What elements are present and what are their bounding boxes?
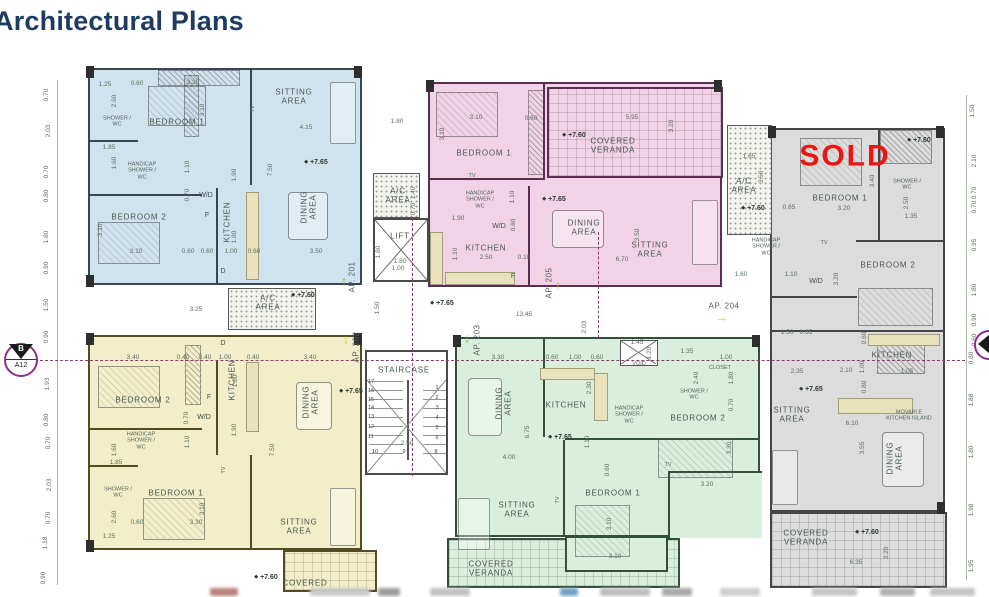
dimension-label: 6.70 bbox=[616, 256, 629, 264]
dimension-label: 3.10 bbox=[97, 224, 105, 237]
level-marker: +7.60 bbox=[741, 205, 765, 213]
dimension-label: 1.60 bbox=[111, 444, 119, 457]
fixture-label: W/D bbox=[492, 223, 506, 231]
room-label: A/C AREA bbox=[386, 187, 411, 206]
dimension-label: 13.45 bbox=[516, 311, 532, 319]
room-label: COVERED VERANDA bbox=[468, 560, 513, 579]
fixture-label: F bbox=[207, 394, 211, 402]
room-label: SITTING AREA bbox=[631, 241, 668, 260]
dimension-label: 0.90 bbox=[43, 331, 51, 344]
room-label: BEDROOM 2 bbox=[670, 413, 725, 422]
level-marker: +7.60 bbox=[291, 292, 315, 300]
dimension-label: 0.60 bbox=[525, 115, 538, 123]
dimension-label: 2.10 bbox=[840, 367, 853, 375]
room-label: DINING AREA bbox=[568, 219, 601, 238]
room-label: BEDROOM 1 bbox=[148, 488, 203, 497]
dimension-label: 3.30 bbox=[492, 354, 505, 362]
stair-number: 2 bbox=[435, 395, 438, 401]
dimension-label: 3.30 bbox=[726, 442, 734, 455]
dimension-label: 1.20 bbox=[646, 347, 654, 360]
dimension-label: 0.70 bbox=[971, 187, 979, 200]
level-marker: +7.65 bbox=[542, 196, 566, 204]
stair-number: 8 bbox=[434, 449, 437, 455]
dimension-label: 1.50 bbox=[781, 329, 794, 337]
dimension-label: 0.80 bbox=[43, 414, 51, 427]
dimension-label: 1.98 bbox=[968, 504, 976, 517]
dimension-label: 0.95 bbox=[971, 239, 979, 252]
dimension-label: 7.50 bbox=[267, 164, 275, 177]
fixture-label: W/D bbox=[809, 278, 823, 286]
dimension-label: 0.60 bbox=[131, 519, 144, 527]
room-label: COVERED bbox=[282, 578, 327, 587]
room-label: BEDROOM 2 bbox=[860, 260, 915, 269]
blurred-thumbnail bbox=[560, 588, 578, 596]
dimension-label: 6.10 bbox=[846, 420, 859, 428]
dimension-label: 1.93 bbox=[44, 378, 52, 391]
dimension-label: 3.50 bbox=[634, 229, 642, 242]
dimension-label: 3.30 bbox=[187, 79, 200, 87]
stair-number: 11 bbox=[368, 434, 374, 440]
section-marker-divider bbox=[6, 359, 36, 360]
room-label: COVERED VERANDA bbox=[783, 529, 828, 548]
apartment-number-label: AP. 203 bbox=[472, 325, 481, 356]
blurred-thumbnail bbox=[720, 588, 760, 596]
dimension-label: 0.60 bbox=[182, 248, 195, 256]
room-sublabel: SHOWER / WC bbox=[893, 179, 921, 192]
room-sublabel: HANDICAP SHOWER / WC bbox=[466, 190, 494, 209]
room-sublabel: TV bbox=[664, 462, 671, 468]
fixture-label: F bbox=[205, 212, 209, 220]
section-marker-sheet: A12 bbox=[4, 362, 38, 369]
fixture-label: F bbox=[511, 273, 515, 281]
dimension-label: 0.40 bbox=[199, 354, 212, 362]
dimension-label: 2.60 bbox=[111, 95, 119, 108]
dimension-label: 5.95 bbox=[626, 114, 639, 122]
dimension-label: 3.10 bbox=[470, 114, 483, 122]
dimension-label: 0.40 bbox=[177, 354, 190, 362]
dimension-label: 1.40 bbox=[410, 187, 418, 200]
dimension-label: 1.90 bbox=[231, 169, 239, 182]
stair-number: 17 bbox=[368, 379, 374, 385]
dimension-label: 1.00 bbox=[219, 354, 232, 362]
room-label: SITTING AREA bbox=[275, 88, 312, 107]
dimension-label: 2.60 bbox=[111, 511, 119, 524]
dimension-label: 3.40 bbox=[869, 175, 877, 188]
dimension-label: 3.10 bbox=[606, 518, 614, 531]
room-sublabel: HANDICAP SHOWER / WC bbox=[128, 161, 156, 180]
dimension-label: 0.60 bbox=[510, 219, 518, 232]
dimension-label: 1.80 bbox=[971, 284, 979, 297]
room-label: SITTING AREA bbox=[773, 406, 810, 425]
stair-number: 4 bbox=[435, 415, 438, 421]
dimension-label: 3.20 bbox=[883, 547, 891, 560]
fixture-label: D bbox=[220, 340, 225, 348]
level-marker: +7.60 bbox=[855, 529, 879, 537]
room-label: BEDROOM 2 bbox=[115, 395, 170, 404]
entrance-arrow-icon: ↓ bbox=[464, 330, 471, 345]
dimension-label: 1.60 bbox=[735, 271, 748, 279]
level-marker: +7.60 bbox=[907, 137, 931, 145]
stair-number: 1 bbox=[435, 385, 438, 391]
dimension-label: 0.60 bbox=[131, 80, 144, 88]
blurred-thumbnail bbox=[378, 588, 400, 596]
room-label: KITCHEN bbox=[546, 400, 587, 409]
annotation-layer: BEDROOM 1SITTING AREABEDROOM 2KITCHENDIN… bbox=[0, 0, 989, 597]
apartment-number-label: AP. 202 bbox=[351, 332, 360, 363]
dimension-label: 0.10 bbox=[518, 254, 531, 262]
dimension-label: 1.90 bbox=[452, 215, 465, 223]
dimension-label: 1.10 bbox=[184, 436, 192, 449]
dimension-label: 1.10 bbox=[785, 271, 798, 279]
room-label: BEDROOM 1 bbox=[812, 193, 867, 202]
stair-number: 5 bbox=[435, 425, 438, 431]
dimension-label: 2.50 bbox=[480, 254, 493, 262]
level-marker: +7.65 bbox=[548, 434, 572, 442]
room-sublabel: TV bbox=[555, 496, 561, 503]
dimension-label: 2.50 bbox=[903, 197, 911, 210]
room-label: KITCHEN bbox=[466, 243, 507, 252]
fixture-label: D bbox=[220, 268, 225, 276]
room-label: DINING AREA bbox=[300, 191, 319, 224]
room-label: BEDROOM 1 bbox=[585, 488, 640, 497]
dimension-label: 3.30 bbox=[190, 519, 203, 527]
dimension-label: 3.55 bbox=[859, 442, 867, 455]
dimension-label: 1.00 bbox=[392, 265, 405, 273]
stair-number: 3 bbox=[435, 405, 438, 411]
level-marker: +7.65 bbox=[304, 159, 328, 167]
dimension-label: 3.20 bbox=[838, 205, 851, 213]
room-label: STAIRCASE bbox=[378, 365, 430, 374]
dimension-label: 0.80 bbox=[861, 381, 869, 394]
dimension-label: 0.60 bbox=[248, 248, 261, 256]
dimension-label: 2.40 bbox=[693, 372, 701, 385]
dimension-label: 0.60 bbox=[201, 248, 214, 256]
dimension-label: 0.60 bbox=[861, 332, 869, 345]
dimension-label: 3.10 bbox=[199, 503, 207, 516]
dimension-label: 1.95 bbox=[968, 560, 976, 573]
dimension-label: 3.10 bbox=[439, 128, 447, 141]
dimension-label: 1.00 bbox=[859, 361, 867, 374]
blurred-thumbnail-strip bbox=[0, 588, 989, 597]
stair-number: 15 bbox=[368, 397, 374, 403]
dimension-label: 0.70 bbox=[43, 166, 51, 179]
dimension-label: 0.65 bbox=[783, 204, 796, 212]
dimension-label: 1.80 bbox=[232, 375, 240, 388]
room-label: SITTING AREA bbox=[498, 501, 535, 520]
dimension-label: 0.70 bbox=[410, 203, 418, 216]
dimension-label: 0.60 bbox=[604, 464, 612, 477]
dimension-label: 1.25 bbox=[103, 533, 116, 541]
dimension-label: 0.70 bbox=[45, 437, 53, 450]
room-label: A/C AREA bbox=[256, 294, 281, 313]
dimension-label: 2.03 bbox=[581, 321, 589, 334]
sold-badge: SOLD bbox=[799, 138, 890, 173]
blurred-thumbnail bbox=[662, 588, 692, 596]
dimension-label: 3.50 bbox=[310, 248, 323, 256]
room-label: DINING AREA bbox=[886, 442, 905, 475]
dimension-label: 2.03 bbox=[46, 479, 54, 492]
dimension-label: 0.90 bbox=[43, 262, 51, 275]
floor-plan-page: Architectural Plans bbox=[0, 0, 989, 597]
fixture-label: W/D bbox=[197, 414, 211, 422]
dimension-label: 0.60 bbox=[591, 354, 604, 362]
dimension-label: 3.20 bbox=[668, 120, 676, 133]
room-label: A/C AREA bbox=[732, 177, 757, 196]
room-label: DINING AREA bbox=[302, 386, 321, 419]
entrance-arrow-icon: ↓ bbox=[343, 331, 350, 346]
dimension-label: 3.10 bbox=[199, 104, 207, 117]
dimension-label: 1.50 bbox=[43, 299, 51, 312]
room-sublabel: SHOWER / WC bbox=[104, 487, 132, 500]
level-marker: +7.65 bbox=[339, 388, 363, 396]
dimension-label: 1.10 bbox=[509, 191, 517, 204]
dimension-label: 1.80 bbox=[375, 246, 383, 259]
stair-number: 12 bbox=[368, 424, 374, 430]
dimension-label: 1.80 bbox=[43, 231, 51, 244]
section-marker: B A12 bbox=[4, 343, 38, 377]
room-label: SITTING AREA bbox=[280, 518, 317, 537]
dimension-label: 0.70 bbox=[728, 399, 736, 412]
room-sublabel: TV bbox=[250, 105, 256, 112]
room-sublabel: TV bbox=[820, 240, 827, 246]
dimension-label: 1.25 bbox=[99, 81, 112, 89]
dimension-label: 0.60 bbox=[546, 354, 559, 362]
stair-number: 9 bbox=[402, 449, 405, 455]
room-label: KITCHEN bbox=[872, 350, 913, 359]
blurred-thumbnail bbox=[310, 588, 370, 596]
blurred-thumbnail bbox=[812, 588, 857, 596]
dimension-label: 3.50 bbox=[758, 171, 766, 184]
dimension-label: 1.10 bbox=[184, 161, 192, 174]
dimension-label: 1.00 bbox=[720, 354, 733, 362]
blurred-thumbnail bbox=[930, 588, 975, 596]
room-label: BEDROOM 1 bbox=[149, 117, 204, 126]
dimension-label: 3.40 bbox=[304, 354, 317, 362]
room-sublabel: HANDICAP SHOWER / WC bbox=[752, 237, 780, 256]
dimension-label: 1.45 bbox=[631, 339, 644, 347]
blurred-thumbnail bbox=[880, 588, 915, 596]
section-direction-icon bbox=[978, 334, 989, 354]
dimension-label: 0.80 bbox=[43, 190, 51, 203]
dimension-label: 0.70 bbox=[184, 189, 192, 202]
dimension-label: 1.88 bbox=[968, 394, 976, 407]
stair-number: 16 bbox=[368, 388, 374, 394]
room-sublabel: HANDICAP SHOWER / WC bbox=[127, 431, 155, 450]
dimension-label: 3.25 bbox=[190, 306, 203, 314]
stair-number: 10 bbox=[372, 449, 378, 455]
room-label: BEDROOM 2 bbox=[111, 212, 166, 221]
dimension-label: 1.80 bbox=[968, 446, 976, 459]
room-label: LIFT bbox=[390, 231, 410, 240]
dimension-label: 0.80 bbox=[968, 352, 976, 365]
room-sublabel: MOVABLE KITCHEN ISLAND bbox=[886, 410, 932, 423]
dimension-label: 1.18 bbox=[42, 537, 50, 550]
dimension-label: 3.40 bbox=[127, 354, 140, 362]
room-label: DINING AREA bbox=[495, 387, 514, 420]
level-marker: +7.65 bbox=[430, 300, 454, 308]
dimension-label: 1.50 bbox=[374, 302, 382, 315]
dimension-label: 2.50 bbox=[401, 440, 414, 448]
level-marker: +7.60 bbox=[562, 132, 586, 140]
level-marker: +7.65 bbox=[799, 386, 823, 394]
dimension-label: 0.70 bbox=[45, 512, 53, 525]
room-sublabel: TV bbox=[221, 466, 227, 473]
room-label: COVERED VERANDA bbox=[590, 137, 635, 156]
room-label: BEDROOM 1 bbox=[456, 148, 511, 157]
dimension-label: 1.80 bbox=[231, 231, 239, 244]
room-sublabel: VOID bbox=[632, 361, 645, 367]
stair-number: 13 bbox=[368, 414, 374, 420]
blurred-thumbnail bbox=[600, 588, 650, 596]
dimension-label: 0.70 bbox=[43, 89, 51, 102]
dimension-label: 1.50 bbox=[969, 105, 977, 118]
dimension-label: 0.70 bbox=[971, 201, 979, 214]
dimension-label: 1.60 bbox=[111, 157, 119, 170]
dimension-label: 2.35 bbox=[791, 368, 804, 376]
dimension-label: 1.35 bbox=[681, 348, 694, 356]
section-marker-id: B bbox=[4, 344, 38, 353]
dimension-label: 1.00 bbox=[569, 354, 582, 362]
room-sublabel: HANDICAP SHOWER / WC bbox=[615, 405, 643, 424]
dimension-label: 1.85 bbox=[110, 459, 123, 467]
dimension-label: 2.10 bbox=[971, 155, 979, 168]
dimension-label: 6.75 bbox=[524, 426, 532, 439]
stair-number: 14 bbox=[368, 405, 374, 411]
room-sublabel: CLOSET bbox=[709, 365, 731, 371]
level-marker: +7.60 bbox=[254, 574, 278, 582]
entrance-arrow-icon: ↑ bbox=[555, 277, 562, 292]
dimension-label: 3.10 bbox=[130, 248, 143, 256]
dimension-label: 1.80 bbox=[728, 372, 736, 385]
blurred-thumbnail bbox=[210, 588, 238, 596]
dimension-label: 2.30 bbox=[586, 382, 594, 395]
blurred-thumbnail bbox=[430, 588, 470, 596]
dimension-label: 3.10 bbox=[609, 553, 622, 561]
dimension-label: 0.70 bbox=[183, 412, 191, 425]
dimension-label: 1.05 bbox=[901, 368, 914, 376]
dimension-label: 1.85 bbox=[103, 144, 116, 152]
room-sublabel: SHOWER / WC bbox=[103, 116, 131, 129]
dimension-label: 1.90 bbox=[231, 424, 239, 437]
entrance-arrow-icon: → bbox=[716, 309, 729, 324]
room-sublabel: SHOWER / WC bbox=[680, 389, 708, 402]
dimension-label: 6.35 bbox=[850, 559, 863, 567]
dimension-label: 2.03 bbox=[45, 125, 53, 138]
dimension-label: 1.65 bbox=[743, 153, 756, 161]
dimension-label: 4.00 bbox=[503, 454, 516, 462]
dimension-label: 3.20 bbox=[701, 481, 714, 489]
dimension-label: 1.80 bbox=[391, 118, 404, 126]
dimension-label: 1.10 bbox=[584, 436, 592, 449]
dimension-label: 0.90 bbox=[971, 314, 979, 327]
apartment-number-label: AP. 205 bbox=[544, 268, 553, 299]
stair-number: 6 bbox=[435, 435, 438, 441]
dimension-label: 1.10 bbox=[452, 248, 460, 261]
dimension-label: 1.00 bbox=[225, 248, 238, 256]
apartment-number-label: AP. 201 bbox=[347, 262, 356, 293]
dimension-label: 4.15 bbox=[300, 124, 313, 132]
dimension-label: 7.50 bbox=[269, 444, 277, 457]
dimension-label: 3.20 bbox=[833, 273, 841, 286]
dimension-label: 1.35 bbox=[905, 213, 918, 221]
dimension-label: 0.65 bbox=[800, 329, 813, 337]
fixture-label: W/D bbox=[199, 192, 213, 200]
dimension-label: 0.40 bbox=[247, 354, 260, 362]
entrance-arrow-icon: ↑ bbox=[341, 273, 348, 288]
room-sublabel: TV bbox=[468, 173, 475, 179]
dimension-label: 0.90 bbox=[40, 572, 48, 585]
